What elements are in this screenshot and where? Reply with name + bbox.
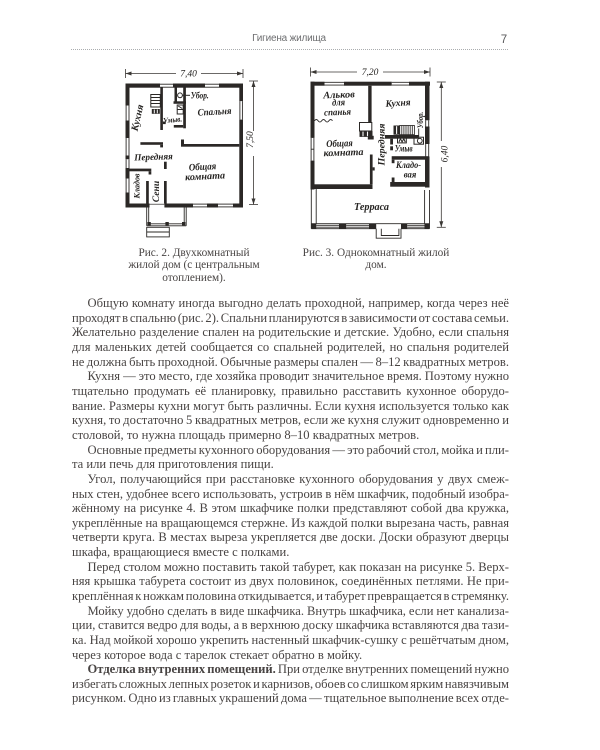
svg-text:вая: вая (404, 170, 417, 180)
svg-text:Передняя: Передняя (133, 151, 173, 163)
svg-text:7,50: 7,50 (246, 131, 256, 148)
svg-text:7,40: 7,40 (180, 70, 197, 80)
svg-text:Спальня: Спальня (197, 106, 232, 119)
svg-text:Кухня: Кухня (129, 103, 146, 133)
svg-text:комната: комната (323, 147, 363, 159)
svg-text:Терраса: Терраса (354, 202, 389, 213)
svg-text:Кухня: Кухня (384, 97, 411, 110)
svg-text:6,40: 6,40 (441, 145, 450, 162)
svg-text:Умыв.: Умыв. (163, 114, 183, 125)
svg-text:Умыв: Умыв (395, 144, 413, 154)
svg-text:Сени: Сени (151, 180, 162, 202)
svg-text:Убор.: Убор. (415, 112, 425, 129)
svg-text:Кладов: Кладов (132, 173, 142, 199)
svg-text:спанья: спанья (324, 108, 351, 119)
svg-text:для: для (332, 97, 345, 108)
svg-text:Убор.: Убор. (191, 91, 209, 101)
svg-text:комната: комната (185, 170, 226, 183)
svg-text:7,20: 7,20 (362, 68, 379, 78)
svg-text:Передняя: Передняя (377, 124, 388, 167)
